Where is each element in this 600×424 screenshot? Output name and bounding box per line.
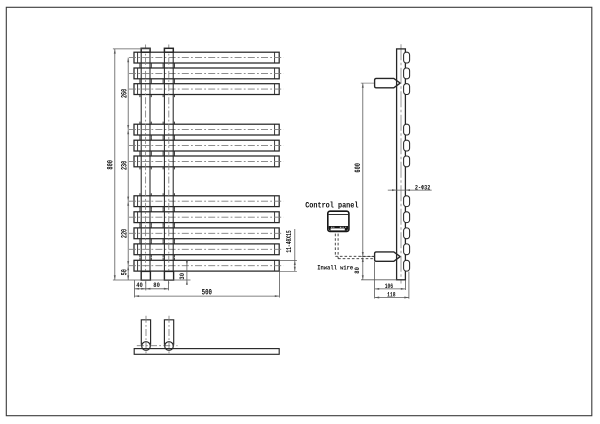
svg-text:11-40X15: 11-40X15 bbox=[286, 230, 294, 252]
svg-text:2-Φ32: 2-Φ32 bbox=[415, 184, 431, 191]
svg-text:106: 106 bbox=[385, 283, 394, 290]
svg-text:800: 800 bbox=[106, 160, 115, 170]
svg-text:Inwall wire: Inwall wire bbox=[317, 265, 353, 272]
svg-text:Control panel: Control panel bbox=[305, 202, 358, 211]
svg-text:118: 118 bbox=[387, 292, 395, 299]
svg-text:260: 260 bbox=[121, 89, 130, 98]
svg-text:30: 30 bbox=[179, 273, 186, 280]
svg-text:80: 80 bbox=[354, 267, 361, 274]
svg-text:230: 230 bbox=[121, 161, 130, 170]
svg-text:220: 220 bbox=[121, 229, 130, 238]
svg-text:600: 600 bbox=[354, 163, 363, 173]
svg-text:500: 500 bbox=[202, 288, 212, 297]
svg-text:80: 80 bbox=[153, 282, 160, 289]
svg-text:50: 50 bbox=[121, 269, 130, 275]
svg-text:40: 40 bbox=[136, 282, 143, 289]
